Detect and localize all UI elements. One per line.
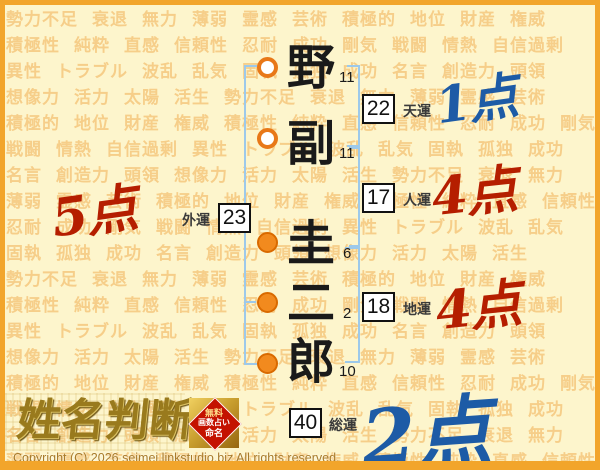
watermark-word: 波乱 bbox=[142, 319, 178, 344]
stroke-count: 11 bbox=[339, 69, 355, 86]
watermark-word: 活力 bbox=[392, 241, 428, 266]
watermark-word: 純粋 bbox=[74, 33, 110, 58]
watermark-word: 乱気 bbox=[192, 59, 228, 84]
watermark-word: 積極的 bbox=[342, 7, 396, 32]
chiun-value-box: 18 bbox=[362, 292, 395, 322]
watermark-word: 自信過剰 bbox=[106, 137, 178, 162]
watermark-word: 戦闘 bbox=[6, 137, 42, 162]
watermark-word: 信頼性 bbox=[174, 33, 228, 58]
watermark-word: 想像力 bbox=[174, 163, 228, 188]
watermark-word: 活力 bbox=[74, 345, 110, 370]
watermark-word: 異性 bbox=[342, 215, 378, 240]
watermark-word: 直感 bbox=[492, 449, 528, 467]
stroke-count: 2 bbox=[343, 305, 351, 322]
watermark-word: 戦闘 bbox=[392, 33, 428, 58]
watermark-word: 成功 bbox=[528, 397, 564, 422]
watermark-word: 霊感 bbox=[460, 345, 496, 370]
watermark-word: 活生 bbox=[174, 345, 210, 370]
chiun-label: 地運 bbox=[403, 299, 431, 319]
watermark-word: 権威 bbox=[510, 7, 546, 32]
watermark-word: 勢力不足 bbox=[6, 7, 78, 32]
watermark-word: 名言 bbox=[6, 163, 42, 188]
watermark-word: 直感 bbox=[124, 293, 160, 318]
jinun-score: 4点 bbox=[427, 147, 519, 230]
watermark-word: 積極的 bbox=[6, 111, 60, 136]
watermark-word: 忍耐 bbox=[242, 33, 278, 58]
watermark-word: 純粋 bbox=[74, 293, 110, 318]
watermark-word: 勢力不足 bbox=[6, 267, 78, 292]
tenun-label: 天運 bbox=[403, 101, 431, 121]
tenun-score: 1点 bbox=[430, 56, 520, 139]
watermark-word: 忍耐 bbox=[6, 215, 42, 240]
copyright-text: Copyright (C) 2026 seimei.linkstudio.biz… bbox=[13, 451, 340, 465]
name-char: 二 bbox=[283, 276, 339, 332]
watermark-word: 頭領 bbox=[510, 59, 546, 84]
watermark-word: 活力 bbox=[74, 85, 110, 110]
tenun-value-box: 22 bbox=[362, 94, 395, 124]
watermark-word: 芸術 bbox=[292, 7, 328, 32]
watermark-word: 固執 bbox=[6, 241, 42, 266]
watermark-word: 異性 bbox=[192, 137, 228, 162]
watermark-word: 想像力 bbox=[6, 345, 60, 370]
watermark-word: 乱気 bbox=[192, 319, 228, 344]
watermark-word: 活生 bbox=[174, 85, 210, 110]
watermark-word: 積極性 bbox=[6, 33, 60, 58]
watermark-word: 名言 bbox=[392, 319, 428, 344]
seimei-handan-result: 勢力不足衰退無力薄弱霊感芸術積極的地位財産権威積極性純粋直感信頼性忍耐成功剛気戦… bbox=[0, 0, 600, 470]
gaiun-score: 5点 bbox=[46, 166, 140, 252]
watermark-word: トラブル bbox=[56, 319, 128, 344]
name-char: 副 bbox=[283, 117, 339, 173]
watermark-word: 成功 bbox=[528, 137, 564, 162]
name-char: 野 bbox=[283, 41, 339, 97]
gaiun-value-box: 23 bbox=[218, 203, 251, 233]
seal-text: 無料 画数占い 命名 bbox=[189, 398, 239, 448]
watermark-word: 無力 bbox=[528, 163, 564, 188]
watermark-word: 積極性 bbox=[224, 371, 278, 396]
watermark-word: 無力 bbox=[142, 7, 178, 32]
watermark-word: 成功 bbox=[106, 241, 142, 266]
watermark-word: 薄弱 bbox=[410, 345, 446, 370]
given-char-bullet bbox=[257, 232, 278, 253]
seal-line1: 無料 bbox=[205, 408, 223, 418]
seal-line3: 命名 bbox=[205, 428, 223, 438]
watermark-word: 薄弱 bbox=[192, 7, 228, 32]
jinun-bracket bbox=[349, 147, 360, 247]
watermark-word: 自信過剰 bbox=[492, 33, 564, 58]
given-char-bullet bbox=[257, 353, 278, 374]
chiun-score: 4点 bbox=[431, 261, 523, 344]
watermark-word: 活力 bbox=[242, 423, 278, 448]
jinun-label: 人運 bbox=[403, 190, 431, 210]
watermark-word: 財産 bbox=[124, 111, 160, 136]
watermark-word: 財産 bbox=[460, 7, 496, 32]
watermark-word: 太陽 bbox=[442, 241, 478, 266]
soun-score: 2点 bbox=[357, 369, 493, 470]
watermark-word: 衰退 bbox=[92, 7, 128, 32]
watermark-word: トラブル bbox=[56, 59, 128, 84]
watermark-word: 想像力 bbox=[6, 85, 60, 110]
stroke-count: 10 bbox=[339, 363, 356, 380]
stroke-count: 6 bbox=[343, 245, 351, 262]
watermark-word: 乱気 bbox=[378, 137, 414, 162]
watermark-word: 無力 bbox=[142, 267, 178, 292]
watermark-word: 地位 bbox=[410, 7, 446, 32]
free-naming-seal-badge[interactable]: 無料 画数占い 命名 bbox=[189, 398, 239, 448]
name-char: 郎 bbox=[283, 335, 339, 391]
watermark-word: 無力 bbox=[360, 345, 396, 370]
watermark-word: 直感 bbox=[124, 33, 160, 58]
watermark-word: 芸術 bbox=[510, 345, 546, 370]
watermark-word: 異性 bbox=[6, 59, 42, 84]
watermark-word: 無力 bbox=[528, 423, 564, 448]
seal-line2: 画数占い bbox=[198, 418, 230, 427]
stroke-count: 11 bbox=[339, 145, 355, 162]
watermark-word: 財産 bbox=[274, 189, 310, 214]
watermark-word: 情熱 bbox=[442, 33, 478, 58]
watermark-word: 太陽 bbox=[124, 345, 160, 370]
watermark-word: 信頼性 bbox=[542, 449, 596, 467]
watermark-word: 信頼性 bbox=[542, 189, 596, 214]
soun-value-box: 40 bbox=[289, 408, 322, 438]
given-char-bullet bbox=[257, 292, 278, 313]
site-logo-link[interactable]: 姓名判断 bbox=[14, 395, 195, 447]
surname-char-bullet bbox=[257, 57, 278, 78]
watermark-word: 霊感 bbox=[242, 7, 278, 32]
watermark-word: 薄弱 bbox=[6, 189, 42, 214]
watermark-word: 剛気 bbox=[560, 371, 596, 396]
watermark-word: 名言 bbox=[156, 241, 192, 266]
surname-char-bullet bbox=[257, 128, 278, 149]
watermark-word: 名言 bbox=[392, 59, 428, 84]
watermark-word: 積極性 bbox=[6, 293, 60, 318]
soun-label: 総運 bbox=[329, 415, 357, 435]
watermark-word: 波乱 bbox=[142, 59, 178, 84]
watermark-word: 権威 bbox=[174, 111, 210, 136]
watermark-word: 乱気 bbox=[528, 215, 564, 240]
gaiun-label: 外運 bbox=[182, 210, 210, 230]
watermark-word: 衰退 bbox=[92, 267, 128, 292]
jinun-value-box: 17 bbox=[362, 183, 395, 213]
watermark-word: 異性 bbox=[6, 319, 42, 344]
watermark-word: 信頼性 bbox=[174, 293, 228, 318]
watermark-word: 成功 bbox=[510, 371, 546, 396]
watermark-word: 太陽 bbox=[124, 85, 160, 110]
watermark-word: 地位 bbox=[74, 111, 110, 136]
watermark-word: 剛気 bbox=[342, 33, 378, 58]
watermark-word: 情熱 bbox=[56, 137, 92, 162]
watermark-word: 薄弱 bbox=[192, 267, 228, 292]
name-char: 圭 bbox=[283, 217, 339, 273]
watermark-word: 剛気 bbox=[560, 111, 596, 136]
gaiun-bracket-middle-tick bbox=[244, 301, 256, 303]
